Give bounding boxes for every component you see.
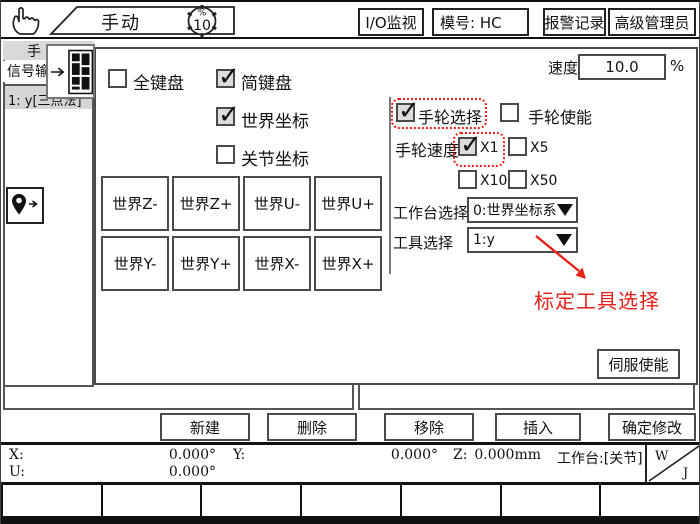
softkey-cell[interactable] bbox=[3, 485, 101, 516]
keypad-grid-icon bbox=[68, 49, 93, 95]
world-joint-toggle[interactable]: W J bbox=[645, 445, 700, 482]
checkbox-x5[interactable] bbox=[508, 137, 527, 156]
world-flag-label: W bbox=[655, 449, 669, 464]
insert-button[interactable]: 插入 bbox=[495, 413, 581, 441]
jog-button-grid: 世界Z- 世界Z+ 世界U- 世界U+ 世界Y- 世界Y+ 世界X- 世界X+ bbox=[101, 176, 382, 291]
x5-label: X5 bbox=[530, 140, 549, 156]
location-pin-icon bbox=[10, 193, 40, 219]
calibration-tool-annotation: 标定工具选择 bbox=[534, 285, 660, 314]
keyboard-popup[interactable] bbox=[46, 44, 95, 99]
right-arrow-icon bbox=[50, 65, 66, 79]
joint-coord-label: 关节坐标 bbox=[241, 145, 309, 170]
softkey-cell[interactable] bbox=[302, 485, 400, 516]
checkbox-handwheel-enable[interactable] bbox=[500, 103, 519, 122]
workspace: 手 信号输 1: y[三点法] bbox=[1, 39, 700, 442]
remove-button[interactable]: 移除 bbox=[384, 413, 474, 441]
checkbox-x10[interactable] bbox=[458, 170, 477, 189]
jog-world-y-minus[interactable]: 世界Y- bbox=[101, 236, 169, 291]
full-keyboard-label: 全键盘 bbox=[133, 69, 184, 94]
gear-percent-sign: % bbox=[198, 9, 207, 19]
softkey-cell[interactable] bbox=[103, 485, 201, 516]
checkbox-x1[interactable] bbox=[458, 137, 477, 156]
delete-button[interactable]: 删除 bbox=[267, 413, 357, 441]
coord-y-value: 0.000° bbox=[353, 447, 438, 463]
coord-x-label: X: bbox=[9, 447, 24, 463]
softkey-cell[interactable] bbox=[502, 485, 600, 516]
mode-label[interactable]: 手动 bbox=[101, 9, 141, 35]
new-button[interactable]: 新建 bbox=[160, 413, 250, 441]
hand-cursor-icon bbox=[8, 5, 46, 36]
tool-select-label: 工具选择 bbox=[393, 232, 453, 253]
jog-world-x-minus[interactable]: 世界X- bbox=[243, 236, 311, 291]
handwheel-speed-label: 手轮速度 bbox=[395, 137, 459, 161]
teach-pendant-screen: 手动 % 10 I/O监视 模号: HC 报警记录 高级管理员 手 信号输 1:… bbox=[0, 0, 700, 524]
model-number-button[interactable]: 模号: HC bbox=[432, 8, 529, 36]
softkey-cell[interactable] bbox=[601, 485, 699, 516]
checkbox-x50[interactable] bbox=[508, 170, 527, 189]
worktable-select-value: 0:世界坐标系 bbox=[473, 200, 557, 220]
jog-world-u-minus[interactable]: 世界U- bbox=[243, 176, 311, 231]
handwheel-enable-label: 手轮使能 bbox=[528, 104, 592, 128]
softkey-cell[interactable] bbox=[202, 485, 300, 516]
simple-keyboard-label: 简键盘 bbox=[241, 69, 292, 94]
action-button-row: 新建 删除 移除 插入 确定修改 bbox=[1, 410, 700, 442]
admin-level-button[interactable]: 高级管理员 bbox=[608, 8, 696, 36]
tool-select-value: 1:y bbox=[473, 232, 495, 248]
coord-u-value: 0.000° bbox=[131, 464, 216, 480]
jog-world-z-minus[interactable]: 世界Z- bbox=[101, 176, 169, 231]
status-bar: X: 0.000° Y: 0.000° Z: 0.000mm U: 0.000°… bbox=[1, 445, 700, 482]
worktable-select-dropdown[interactable]: 0:世界坐标系 bbox=[467, 197, 578, 223]
alarm-record-button[interactable]: 报警记录 bbox=[543, 8, 606, 36]
io-monitor-button[interactable]: I/O监视 bbox=[358, 8, 424, 36]
checkbox-world-coord[interactable] bbox=[216, 107, 235, 126]
handwheel-select-label: 手轮选择 bbox=[418, 104, 482, 128]
coord-y-label: Y: bbox=[233, 447, 245, 463]
annotation-arrow-icon bbox=[533, 233, 595, 285]
joint-flag-label: J bbox=[681, 466, 688, 481]
coord-u-label: U: bbox=[9, 464, 25, 480]
confirm-modify-button[interactable]: 确定修改 bbox=[608, 413, 696, 441]
x1-label: X1 bbox=[480, 140, 499, 156]
speed-gear-icon[interactable]: % 10 bbox=[181, 3, 223, 39]
x10-label: X10 bbox=[480, 173, 507, 189]
jog-world-u-plus[interactable]: 世界U+ bbox=[314, 176, 382, 231]
checkbox-full-keyboard[interactable] bbox=[108, 69, 127, 88]
speed-label: 速度 bbox=[548, 57, 578, 78]
gear-speed-value: 10 bbox=[193, 18, 211, 34]
softkey-cell[interactable] bbox=[402, 485, 500, 516]
top-bar: 手动 % 10 I/O监视 模号: HC 报警记录 高级管理员 bbox=[1, 2, 700, 39]
speed-input[interactable]: 10.0 bbox=[578, 54, 666, 80]
position-pin-button[interactable] bbox=[6, 187, 44, 224]
checkbox-simple-keyboard[interactable] bbox=[216, 69, 235, 88]
servo-enable-button[interactable]: 伺服使能 bbox=[597, 349, 680, 379]
checkbox-joint-coord[interactable] bbox=[216, 145, 235, 164]
world-coord-label: 世界坐标 bbox=[241, 107, 309, 132]
dropdown-arrow-icon bbox=[557, 204, 573, 216]
manual-settings-dialog: 速度 10.0 % 全键盘 简键盘 世界坐标 关节坐标 世界Z- 世界Z+ 世界… bbox=[94, 47, 698, 385]
jog-world-y-plus[interactable]: 世界Y+ bbox=[172, 236, 240, 291]
jog-world-z-plus[interactable]: 世界Z+ bbox=[172, 176, 240, 231]
tool-list-panel: 1: y[三点法] bbox=[3, 84, 94, 387]
worktable-select-label: 工作台选择 bbox=[393, 202, 468, 223]
speed-unit: % bbox=[670, 57, 684, 75]
coord-x-value: 0.000° bbox=[131, 447, 216, 463]
x50-label: X50 bbox=[530, 173, 557, 189]
jog-world-x-plus[interactable]: 世界X+ bbox=[314, 236, 382, 291]
checkbox-handwheel-select[interactable] bbox=[396, 103, 415, 122]
bottom-key-strip bbox=[1, 482, 700, 524]
worktable-status: 工作台:[关节] bbox=[557, 448, 643, 468]
coord-z-value: 0.000mm bbox=[461, 447, 541, 463]
